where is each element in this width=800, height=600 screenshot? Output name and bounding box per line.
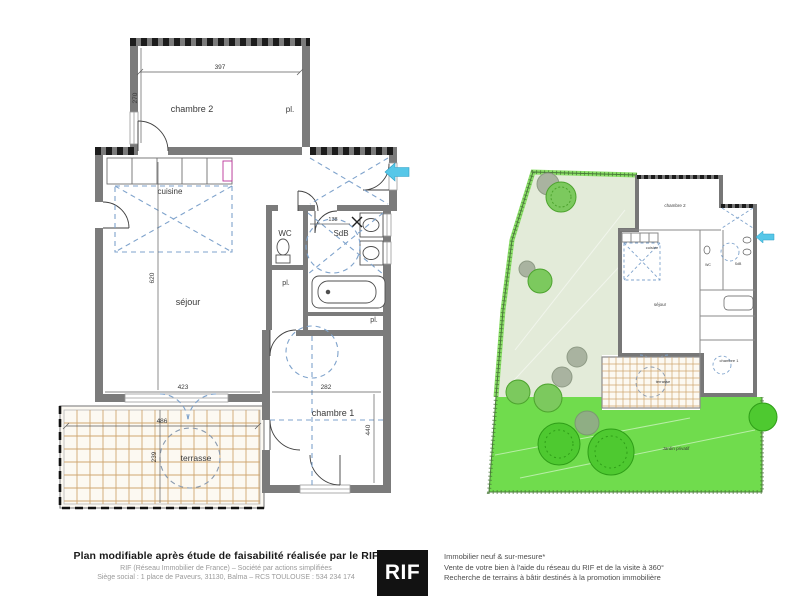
floor-plan: 397 270 620 423 282 440 486 239 138 cham… [60,38,409,508]
dim-chambre1-width: 282 [321,384,332,391]
mini-label-chambre1: chambre 1 [720,358,740,363]
room-label-wc: WC [278,229,292,238]
dim-sejour-width: 423 [178,384,189,391]
room-label-closet-sdb: pl. [370,317,377,324]
mini-label-terrasse: terrasse [656,379,671,384]
mini-label-wc: WC [705,263,711,267]
footer-title: Plan modifiable après étude de faisabili… [40,550,412,562]
room-label-chambre1: chambre 1 [312,408,355,418]
washbasin [363,247,379,260]
footer-address-line: Siège social : 1 place de Paveurs, 31130… [40,573,412,582]
dim-chambre2-height: 270 [132,92,139,103]
mini-label-chambre2: chambre 2 [664,203,686,208]
footer-left-block: Plan modifiable après étude de faisabili… [40,550,412,582]
room-label-closet-hall: pl. [282,280,289,287]
footer-company-line: RIF (Réseau Immobilier de France) – Soci… [40,564,412,573]
room-label-terrasse: terrasse [181,453,212,463]
dim-sdb-width: 138 [328,217,337,223]
kitchen-appliance [223,161,232,181]
room-label-sdb: SdB [333,229,348,238]
mini-label-sejour: séjour [654,302,667,307]
dimension-labels: 397 270 620 423 282 440 486 239 138 [132,64,372,462]
wc-toilet [277,239,289,255]
garden-label-jardin-privatif: Jardin privatif [663,446,691,451]
footer-service-line: Vente de votre bien à l'aide du réseau d… [444,563,774,574]
room-label-chambre2: chambre 2 [171,104,214,114]
mini-label-sdb: SdB [735,262,742,266]
mini-terrasse [602,357,700,408]
room-label-cuisine: cuisine [158,187,183,196]
kitchen-cabinets [107,158,232,184]
dim-chambre1-height: 440 [365,424,372,435]
fixtures [276,213,385,308]
footer-service-line: Immobilier neuf & sur-mesure* [444,552,774,563]
dim-sejour-height: 620 [149,272,156,283]
wall-hatch [95,42,397,151]
dim-terrasse-height: 239 [151,451,158,462]
dim-terrasse-width: 486 [157,418,168,425]
dim-chambre2-width: 397 [215,64,226,71]
plan-sheet: 397 270 620 423 282 440 486 239 138 cham… [0,0,800,600]
rif-logo: RIF [377,550,428,596]
plans-canvas: 397 270 620 423 282 440 486 239 138 cham… [0,0,800,545]
footer-service-line: Recherche de terrains à bâtir destinés à… [444,573,774,584]
room-label-sejour: séjour [176,297,201,307]
washbasin [363,219,379,232]
mini-label-cuisine: cuisine [646,245,659,250]
mini-entry-arrow-icon [756,231,774,243]
footer-services-block: Immobilier neuf & sur-mesure* Vente de v… [444,552,774,584]
site-plan: chambre 2 cuisine séjour WC SdB chambre … [489,172,777,492]
room-label-closet-chambre2: pl. [286,105,294,114]
